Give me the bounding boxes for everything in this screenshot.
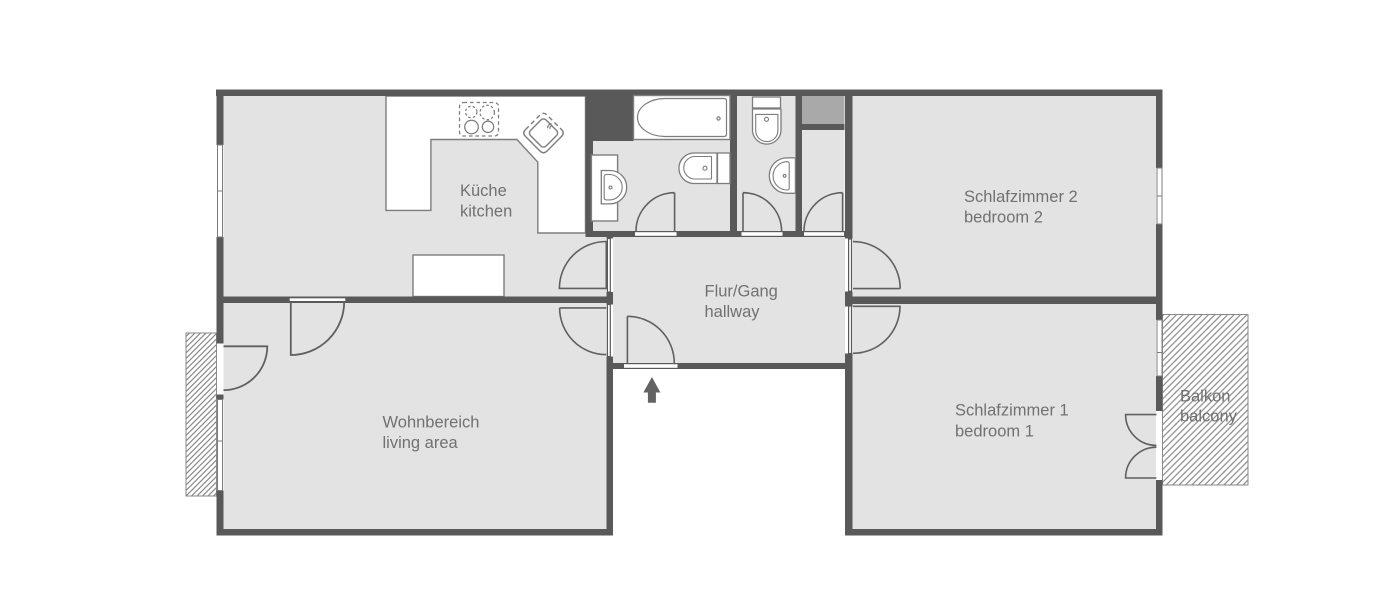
svg-text:bedroom 2: bedroom 2 (964, 209, 1043, 227)
svg-text:kitchen: kitchen (460, 203, 512, 221)
svg-text:balcony: balcony (1180, 408, 1238, 426)
svg-text:Schlafzimmer 1: Schlafzimmer 1 (955, 402, 1069, 420)
svg-text:Schlafzimmer 2: Schlafzimmer 2 (964, 188, 1078, 206)
svg-text:hallway: hallway (705, 303, 761, 321)
svg-text:living area: living area (383, 434, 459, 452)
svg-text:Balkon: Balkon (1180, 388, 1230, 406)
svg-text:Küche: Küche (460, 182, 507, 200)
svg-text:bedroom 1: bedroom 1 (955, 423, 1034, 441)
svg-text:Flur/Gang: Flur/Gang (705, 283, 778, 301)
svg-text:Wohnbereich: Wohnbereich (383, 414, 480, 432)
